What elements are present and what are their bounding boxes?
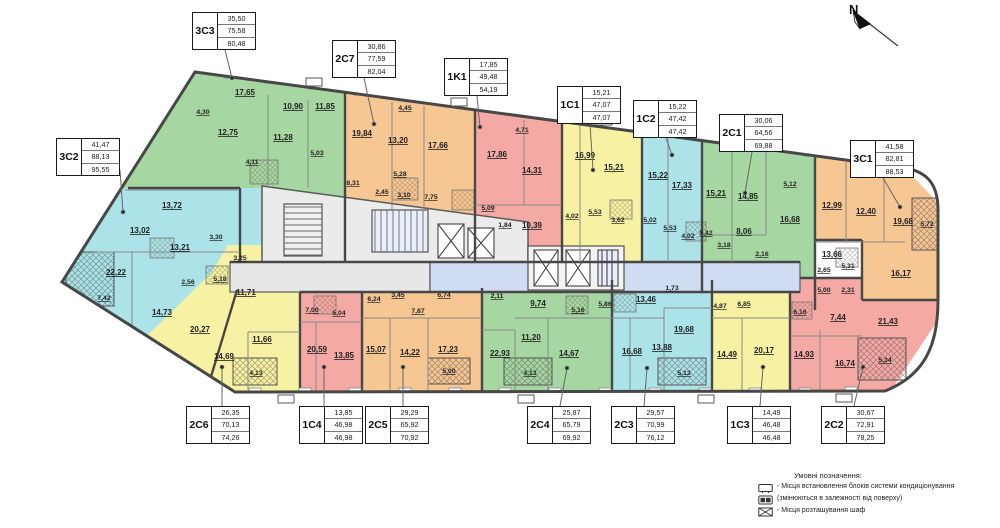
room-area-label: 11,20 bbox=[521, 333, 541, 342]
room-area-label: 9,74 bbox=[530, 299, 546, 308]
legend-item: - Місця встановлення блоків системи конд… bbox=[742, 483, 998, 493]
room-area-label: 4,02 bbox=[565, 213, 578, 220]
callout-3c3: 3C3 35,5075,5880,48 bbox=[192, 12, 256, 50]
room-area-label: 5,18 bbox=[213, 276, 226, 283]
callout-1c4: 1C4 13,8546,9846,98 bbox=[299, 406, 363, 444]
legend-item: - Місця розташування шаф bbox=[742, 507, 998, 517]
room-area-label: 22,93 bbox=[490, 349, 511, 358]
room-area-label: 1,73 bbox=[665, 285, 678, 292]
room-area-label: 4,87 bbox=[713, 303, 726, 310]
callout-1c1: 1C1 15,2147,0747,07 bbox=[557, 86, 621, 124]
floor-plan-page: 17,65 10,90 11,85 4,30 12,75 11,28 5,03 … bbox=[0, 0, 1000, 528]
room-area-label: 8,31 bbox=[346, 180, 359, 187]
apartment-code: 2C6 bbox=[187, 407, 212, 443]
apartment-code: 3C3 bbox=[193, 13, 218, 49]
callout-1k1: 1K1 17,8549,4854,19 bbox=[444, 58, 508, 96]
apartment-code: 1C2 bbox=[634, 101, 659, 137]
room-area-label: 16,68 bbox=[780, 215, 801, 224]
legend-item-text: - Місця встановлення блоків системи конд… bbox=[777, 483, 954, 492]
apartment-code: 3C1 bbox=[851, 141, 876, 177]
room-area-label: 12,99 bbox=[822, 201, 843, 210]
room-area-label: 21,43 bbox=[878, 317, 899, 326]
room-area-label: 13,20 bbox=[388, 136, 409, 145]
room-area-label: 5,53 bbox=[588, 209, 601, 216]
room-area-label: 6,16 bbox=[793, 309, 806, 316]
apartment-code: 1K1 bbox=[445, 59, 470, 95]
room-area-label: 4,02 bbox=[681, 233, 694, 240]
apartment-code: 2C2 bbox=[822, 407, 847, 443]
room-area-label: 22,22 bbox=[106, 268, 127, 277]
room-area-label: 2,45 bbox=[375, 189, 388, 196]
legend-item-text: (змінюються в залежності від поверху) bbox=[777, 495, 902, 504]
room-area-label: 5,16 bbox=[571, 307, 584, 314]
legend: Умовні позначення: - Місця встановлення … bbox=[742, 471, 998, 519]
room-area-label: 4,71 bbox=[515, 127, 528, 134]
room-area-label: 15,07 bbox=[366, 345, 387, 354]
room-area-label: 14,67 bbox=[559, 349, 580, 358]
apartment-code: 2C3 bbox=[612, 407, 637, 443]
apartment-code: 3C2 bbox=[57, 139, 82, 175]
room-area-label: 13,46 bbox=[636, 295, 657, 304]
room-area-label: 7,00 bbox=[305, 307, 318, 314]
callout-2c6: 2C6 26,3570,1374,26 bbox=[186, 406, 250, 444]
room-area-label: 13,72 bbox=[162, 201, 183, 210]
room-area-label: 15,21 bbox=[604, 163, 625, 172]
room-area-label: 17,33 bbox=[672, 181, 693, 190]
room-area-label: 5,09 bbox=[481, 205, 494, 212]
room-area-label: 14,85 bbox=[738, 192, 759, 201]
room-area-label: 8,06 bbox=[736, 227, 752, 236]
room-area-label: 17,23 bbox=[438, 345, 459, 354]
callout-3c1: 3C1 41,5882,8188,53 bbox=[850, 140, 914, 178]
room-area-label: 5,86 bbox=[598, 301, 611, 308]
callout-1c2: 1C2 15,2247,4247,42 bbox=[633, 100, 697, 138]
room-area-label: 19,84 bbox=[352, 129, 373, 138]
ac-outdoor-unit-icon bbox=[758, 483, 773, 493]
room-area-label: 10,90 bbox=[283, 102, 304, 111]
room-area-label: 5,34 bbox=[878, 357, 891, 364]
callout-3c2: 3C2 41,4788,1395,55 bbox=[56, 138, 120, 176]
apartment-code: 1C3 bbox=[728, 407, 753, 443]
apartment-code: 2C5 bbox=[366, 407, 391, 443]
room-area-label: 1,84 bbox=[498, 222, 511, 229]
room-area-label: 11,66 bbox=[252, 335, 272, 344]
room-area-label: 2,16 bbox=[755, 251, 768, 258]
room-area-label: 3,18 bbox=[717, 242, 730, 249]
callout-2c1: 2C1 30,0664,5669,88 bbox=[719, 114, 783, 152]
room-area-label: 5,53 bbox=[663, 225, 676, 232]
legend-item: (змінюються в залежності від поверху) bbox=[742, 495, 998, 505]
apartment-1c1-region bbox=[562, 122, 642, 262]
room-area-label: 7,42 bbox=[97, 295, 110, 302]
room-area-label: 14,49 bbox=[717, 350, 738, 359]
room-area-label: 4,13 bbox=[523, 370, 536, 377]
room-area-label: 12,40 bbox=[856, 207, 877, 216]
room-area-label: 14,31 bbox=[522, 166, 543, 175]
room-area-label: 3,62 bbox=[611, 217, 624, 224]
room-area-label: 3,30 bbox=[209, 234, 222, 241]
room-area-label: 5,12 bbox=[783, 181, 796, 188]
room-area-label: 5,31 bbox=[841, 263, 854, 270]
room-area-label: 5,04 bbox=[332, 310, 345, 317]
room-area-label: 5,00 bbox=[817, 287, 830, 294]
room-area-label: 13,88 bbox=[652, 343, 673, 352]
room-area-label: 15,22 bbox=[648, 171, 669, 180]
room-area-label: 2,56 bbox=[181, 279, 194, 286]
room-area-label: 12,75 bbox=[218, 128, 239, 137]
room-area-label: 20,27 bbox=[190, 325, 211, 334]
room-area-label: 13,02 bbox=[130, 226, 151, 235]
room-area-label: 16,68 bbox=[622, 347, 643, 356]
room-area-label: 11,28 bbox=[273, 133, 293, 142]
room-area-label: 17,66 bbox=[428, 141, 449, 150]
room-area-label: 15,21 bbox=[706, 189, 727, 198]
room-area-label: 14,73 bbox=[152, 308, 173, 317]
room-area-label: 7,75 bbox=[424, 194, 437, 201]
legend-title: Умовні позначення: bbox=[794, 471, 998, 480]
room-area-label: 10,39 bbox=[522, 221, 543, 230]
room-area-label: 5,02 bbox=[643, 217, 656, 224]
room-area-label: 14,69 bbox=[214, 352, 235, 361]
room-area-label: 2,11 bbox=[491, 293, 504, 300]
room-area-label: 16,74 bbox=[835, 359, 856, 368]
apartment-code: 2C1 bbox=[720, 115, 745, 151]
north-arrow: N bbox=[835, 2, 945, 72]
room-area-label: 7,87 bbox=[411, 308, 424, 315]
room-area-label: 11,85 bbox=[315, 102, 335, 111]
room-area-label: 2,65 bbox=[817, 267, 830, 274]
apartment-code: 1C4 bbox=[300, 407, 325, 443]
room-area-label: 3,25 bbox=[233, 255, 246, 262]
room-area-label: 4,45 bbox=[398, 105, 411, 112]
callout-1c3: 1C3 14,4946,4846,48 bbox=[727, 406, 791, 444]
room-area-label: 7,44 bbox=[830, 313, 846, 322]
room-area-label: 6,74 bbox=[437, 292, 450, 299]
north-label: N bbox=[849, 2, 858, 17]
apartment-code: 2C4 bbox=[528, 407, 553, 443]
room-area-label: 17,65 bbox=[235, 88, 256, 97]
room-area-label: 17,86 bbox=[487, 150, 508, 159]
room-area-label: 13,85 bbox=[334, 351, 355, 360]
room-area-label: 4,30 bbox=[196, 109, 209, 116]
room-area-label: 5,13 bbox=[677, 370, 690, 377]
room-area-label: 20,17 bbox=[754, 346, 775, 355]
callout-2c3: 2C3 29,5770,9976,12 bbox=[611, 406, 675, 444]
room-area-label: 19,68 bbox=[674, 325, 695, 334]
room-area-label: 2,31 bbox=[841, 287, 854, 294]
callout-2c2: 2C2 30,6772,9178,25 bbox=[821, 406, 885, 444]
apartment-1c2-region bbox=[642, 133, 702, 262]
room-area-label: 5,72 bbox=[920, 221, 933, 228]
room-area-label: 5,28 bbox=[393, 171, 406, 178]
room-area-label: 3,10 bbox=[397, 192, 410, 199]
room-area-label: 14,93 bbox=[794, 350, 815, 359]
room-area-label: 11,71 bbox=[236, 288, 256, 297]
room-area-label: 6,24 bbox=[367, 296, 380, 303]
callout-2c7: 2C7 30,8677,5982,04 bbox=[332, 40, 396, 78]
room-area-label: 20,59 bbox=[307, 345, 328, 354]
apartment-code: 1C1 bbox=[558, 87, 583, 123]
callout-2c5: 2C5 29,2965,9270,92 bbox=[365, 406, 429, 444]
room-area-label: 4,13 bbox=[249, 370, 262, 377]
room-area-label: 14,22 bbox=[400, 348, 421, 357]
room-area-label: 4,11 bbox=[246, 159, 259, 166]
room-area-label: 5,42 bbox=[699, 230, 712, 237]
ac-outdoor-unit-filled-icon bbox=[758, 495, 773, 505]
room-area-label: 13,21 bbox=[170, 243, 191, 252]
wardrobe-icon bbox=[758, 507, 773, 517]
room-area-label: 6,85 bbox=[737, 301, 750, 308]
legend-item-text: - Місця розташування шаф bbox=[777, 507, 865, 516]
room-area-label: 13,66 bbox=[822, 250, 843, 259]
room-area-label: 19,68 bbox=[893, 217, 914, 226]
callout-2c4: 2C4 25,8765,7969,92 bbox=[527, 406, 591, 444]
corridor-gray bbox=[230, 262, 430, 292]
room-area-label: 5,03 bbox=[310, 150, 323, 157]
apartment-code: 2C7 bbox=[333, 41, 358, 77]
room-area-label: 5,00 bbox=[442, 368, 455, 375]
room-area-label: 16,17 bbox=[891, 269, 912, 278]
room-area-label: 3,45 bbox=[391, 292, 404, 299]
